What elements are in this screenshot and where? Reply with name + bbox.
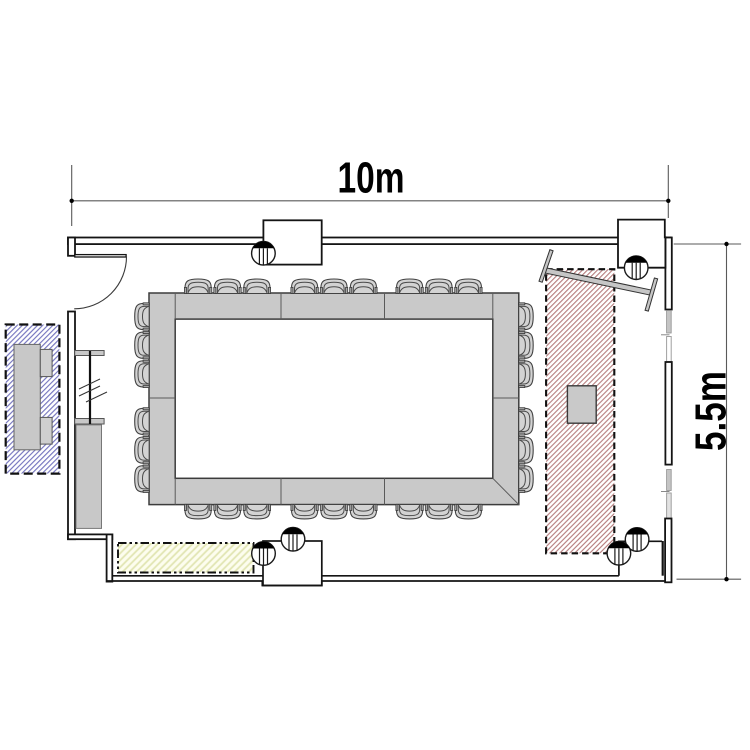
svg-text:5.5m: 5.5m	[688, 371, 736, 451]
svg-text:10m: 10m	[338, 155, 405, 203]
